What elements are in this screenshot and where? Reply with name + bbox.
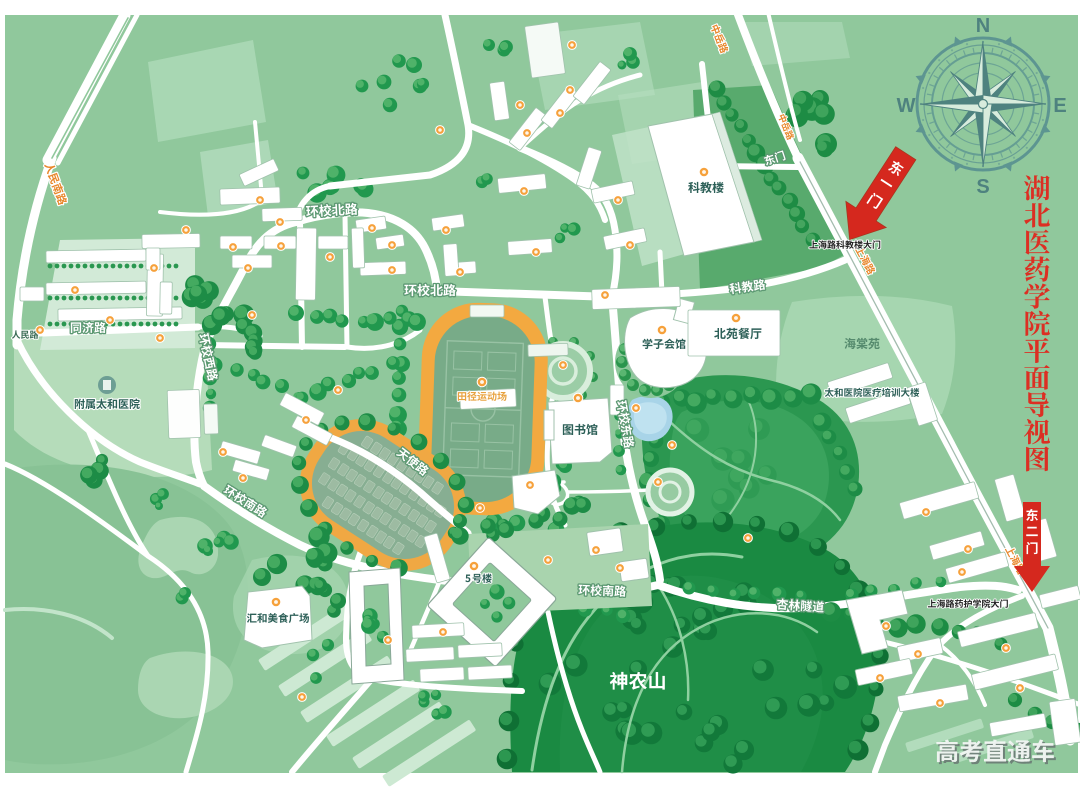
svg-text:W: W [897,95,916,117]
svg-text:E: E [1053,95,1066,117]
svg-text:N: N [976,15,990,37]
svg-text:S: S [976,176,989,198]
